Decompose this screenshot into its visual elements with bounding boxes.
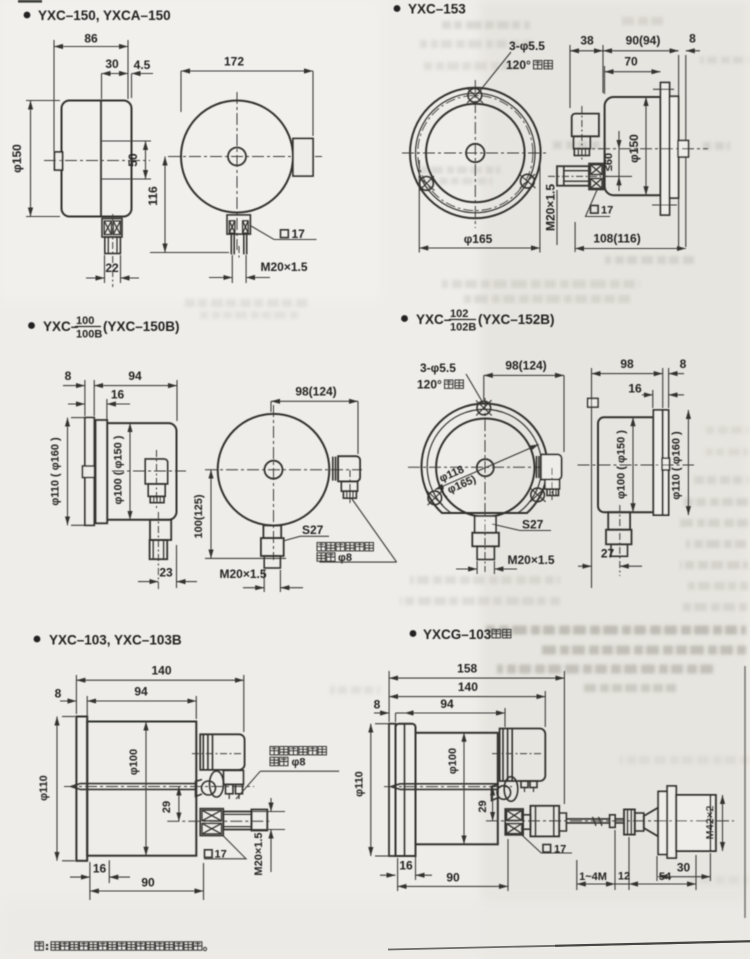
- svg-text:12: 12: [618, 871, 630, 883]
- svg-text:100: 100: [76, 315, 94, 327]
- svg-text:100(125): 100(125): [193, 494, 205, 538]
- svg-text:φ100: φ100: [128, 749, 140, 775]
- svg-text:M20×1.5: M20×1.5: [260, 260, 307, 274]
- svg-text:(YXC–152B): (YXC–152B): [478, 312, 555, 327]
- svg-text:102B: 102B: [450, 322, 476, 334]
- svg-text:50: 50: [126, 153, 140, 167]
- svg-text:M20×1.5: M20×1.5: [253, 832, 265, 875]
- svg-text:φ110: φ110: [38, 775, 50, 801]
- svg-text:8: 8: [689, 32, 696, 46]
- svg-text:16: 16: [111, 388, 125, 402]
- svg-text:86: 86: [84, 32, 98, 46]
- svg-text:38: 38: [580, 34, 594, 48]
- svg-text:8: 8: [680, 357, 687, 371]
- svg-text:100B: 100B: [76, 329, 102, 341]
- svg-text:S27: S27: [302, 523, 324, 537]
- svg-text:M20×1.5: M20×1.5: [507, 553, 554, 567]
- svg-text:102: 102: [450, 308, 468, 320]
- svg-text:φ100: φ100: [447, 748, 459, 774]
- svg-text:YXC–150, YXCA–150: YXC–150, YXCA–150: [38, 8, 171, 23]
- svg-text:17: 17: [554, 844, 566, 856]
- svg-text:φ100 ( φ150 ): φ100 ( φ150 ): [113, 435, 125, 504]
- svg-text:120°: 120°: [417, 378, 442, 392]
- svg-text:φ100 ( φ150 ): φ100 ( φ150 ): [616, 430, 628, 499]
- svg-text:YXC–: YXC–: [416, 312, 452, 327]
- svg-text:29: 29: [477, 800, 489, 812]
- svg-text::: :: [46, 942, 49, 952]
- svg-text:8: 8: [374, 698, 381, 712]
- svg-text:8: 8: [65, 369, 72, 383]
- svg-text:φ165: φ165: [464, 232, 493, 246]
- svg-text:29: 29: [161, 801, 173, 813]
- svg-text:16: 16: [628, 382, 642, 396]
- svg-text:116: 116: [146, 186, 160, 206]
- svg-text:94: 94: [134, 685, 148, 699]
- svg-text:16: 16: [93, 862, 107, 876]
- svg-text:108(116): 108(116): [593, 232, 640, 246]
- svg-text:YXC–103, YXC–103B: YXC–103, YXC–103B: [49, 633, 182, 648]
- svg-text:140: 140: [151, 664, 171, 678]
- svg-text:3-φ5.5: 3-φ5.5: [420, 361, 456, 375]
- svg-text:φ150: φ150: [627, 134, 641, 163]
- svg-text:≤60: ≤60: [603, 153, 615, 171]
- svg-text:(YXC–150B): (YXC–150B): [103, 319, 180, 334]
- svg-text:3-φ5.5: 3-φ5.5: [509, 39, 545, 53]
- svg-text:φ110: φ110: [354, 771, 366, 797]
- svg-text:M42×2: M42×2: [705, 806, 717, 840]
- svg-text:172: 172: [224, 55, 244, 69]
- svg-text:M20×1.5: M20×1.5: [219, 567, 266, 581]
- svg-text:17: 17: [292, 227, 306, 241]
- svg-text:22: 22: [105, 261, 119, 275]
- svg-text:1~4M: 1~4M: [579, 871, 607, 883]
- svg-text:27: 27: [601, 547, 615, 561]
- svg-text:17: 17: [215, 849, 227, 861]
- svg-text:98(124): 98(124): [295, 385, 336, 399]
- svg-text:17: 17: [601, 205, 613, 217]
- svg-text:158: 158: [457, 662, 477, 676]
- svg-text:30: 30: [105, 57, 119, 71]
- svg-text:23: 23: [159, 566, 173, 580]
- svg-text:φ110 ( φ160 ): φ110 ( φ160 ): [50, 437, 62, 506]
- svg-text:90: 90: [141, 876, 155, 890]
- svg-text:φ110 ( φ160 ): φ110 ( φ160 ): [671, 431, 683, 500]
- svg-text:140: 140: [458, 680, 478, 694]
- svg-text:YXC–153: YXC–153: [408, 2, 466, 17]
- svg-text:M20×1.5: M20×1.5: [544, 184, 558, 231]
- svg-text:4.5: 4.5: [134, 58, 151, 72]
- svg-text:16: 16: [399, 859, 413, 873]
- svg-text:8: 8: [55, 687, 62, 701]
- svg-text:98(124): 98(124): [505, 359, 546, 373]
- svg-text:98: 98: [620, 357, 634, 371]
- svg-text:70: 70: [624, 55, 638, 69]
- svg-text:YXC–: YXC–: [43, 319, 79, 334]
- svg-text:φ8: φ8: [292, 757, 306, 769]
- svg-text:φ150: φ150: [10, 144, 24, 173]
- svg-text:120°: 120°: [506, 58, 531, 72]
- svg-text:90: 90: [446, 871, 460, 885]
- svg-text:94: 94: [440, 697, 454, 711]
- svg-text:30: 30: [677, 861, 691, 875]
- svg-text:YXCG–103: YXCG–103: [423, 627, 492, 642]
- svg-text:94: 94: [128, 369, 142, 383]
- svg-text:90(94): 90(94): [626, 34, 661, 48]
- svg-text:S27: S27: [522, 518, 544, 532]
